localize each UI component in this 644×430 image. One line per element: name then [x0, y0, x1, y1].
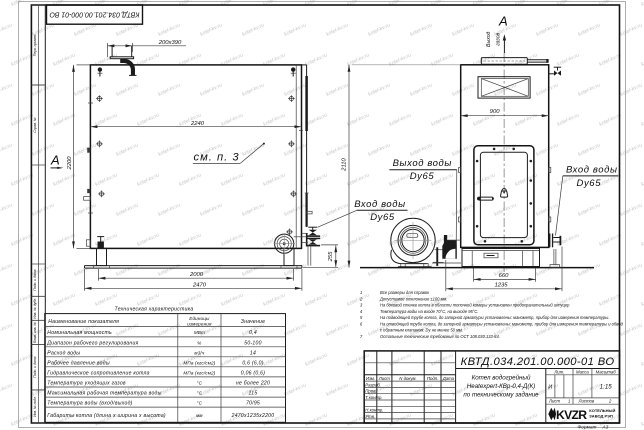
svg-text:Выход воды: Выход воды — [393, 158, 452, 169]
svg-text:2110: 2110 — [342, 157, 348, 171]
svg-text:Лит.: Лит. — [553, 370, 564, 375]
svg-text:КВТД.034.201.00.000-01 ВО: КВТД.034.201.00.000-01 ВО — [461, 356, 615, 368]
svg-text:Температура воды (вход/выход): Температура воды (вход/выход) — [47, 401, 132, 407]
svg-text:МВт: МВт — [194, 330, 205, 335]
svg-text:%: % — [197, 340, 201, 345]
svg-text:Дата: Дата — [442, 376, 455, 381]
svg-text:Диапазон рабочего регулировани: Диапазон рабочего регулирования — [46, 340, 138, 346]
svg-text:2240: 2240 — [190, 121, 205, 127]
svg-text:Подп. и дата: Подп. и дата — [33, 269, 37, 290]
svg-text:Гидравлическое сопротивление к: Гидравлическое сопротивление котла — [47, 371, 149, 377]
svg-text:Листов: Листов — [578, 399, 595, 404]
svg-text:0,06 (0,6): 0,06 (0,6) — [241, 371, 265, 377]
svg-text:газов: газов — [495, 32, 501, 45]
svg-text:Масса: Масса — [576, 370, 589, 375]
svg-text:14: 14 — [250, 350, 256, 356]
svg-text:КВТД.034.201.00.000-01 ВО: КВТД.034.201.00.000-01 ВО — [49, 11, 140, 18]
svg-text:KVZR: KVZR — [556, 408, 587, 422]
svg-text:°С: °С — [197, 391, 203, 396]
svg-text:Утв.: Утв. — [365, 414, 375, 419]
svg-text:1: 1 — [360, 290, 362, 295]
svg-text:50-100: 50-100 — [244, 340, 261, 346]
svg-text:Т.контр.: Т.контр. — [365, 395, 382, 400]
svg-text:МПа (кгс/см2): МПа (кгс/см2) — [183, 360, 215, 365]
svg-text:Подп.: Подп. — [427, 376, 438, 381]
svg-text:Значение: Значение — [241, 319, 265, 325]
svg-text:N докум.: N докум. — [399, 376, 416, 381]
svg-text:A: A — [50, 153, 60, 168]
svg-text:2000: 2000 — [189, 272, 204, 278]
svg-text:Выход: Выход — [486, 31, 492, 46]
svg-text:по техническому задание: по техническому задание — [463, 391, 539, 398]
svg-text:0,4: 0,4 — [249, 330, 257, 336]
svg-text:Температура уходящих газов: Температура уходящих газов — [47, 381, 126, 387]
svg-text:115: 115 — [249, 391, 258, 397]
svg-text:Номинальная мощность: Номинальная мощность — [47, 330, 112, 336]
svg-text:Лист: Лист — [548, 399, 560, 404]
svg-text:Dy65: Dy65 — [577, 178, 602, 189]
svg-text:Справ. №: Справ. № — [33, 117, 37, 133]
svg-text:На отводящей трубе котла, до з: На отводящей трубе котла, до запорной ар… — [380, 321, 624, 326]
svg-text:1:15: 1:15 — [600, 384, 613, 391]
svg-text:И: И — [548, 385, 552, 391]
svg-text:Котел водогрейный: Котел водогрейный — [472, 375, 531, 382]
svg-text:не более 220: не более 220 — [236, 381, 270, 387]
svg-text:Dy65: Dy65 — [410, 171, 435, 182]
svg-text:Наименование показателя: Наименование показателя — [48, 319, 119, 325]
svg-text:На подводящей трубе котла, до: На подводящей трубе котла, до запорной а… — [380, 315, 609, 320]
svg-text:Инв. № подл.: Инв. № подл. — [33, 396, 37, 417]
svg-text:2200: 2200 — [67, 156, 73, 171]
svg-text:2470: 2470 — [192, 282, 207, 288]
svg-text:Перв. примен.: Перв. примен. — [33, 34, 37, 57]
svg-text:Масштаб: Масштаб — [596, 370, 617, 375]
svg-text:Dy65: Dy65 — [370, 212, 395, 223]
svg-text:Техническая характеристика: Техническая характеристика — [115, 306, 194, 312]
svg-text:МПа (кгс/см2): МПа (кгс/см2) — [183, 371, 215, 376]
svg-text:А3: А3 — [602, 425, 609, 430]
svg-text:255: 255 — [328, 251, 334, 263]
svg-text:измерения: измерения — [187, 321, 212, 326]
svg-text:1235: 1235 — [494, 283, 508, 289]
svg-text:Остальные технические требован: Остальные технические требования по ОСТ … — [380, 334, 500, 339]
svg-text:2470х1235х2200: 2470х1235х2200 — [231, 413, 275, 419]
svg-text:Температура воды на входе 70°С: Температура воды на входе 70°С, на выход… — [380, 309, 479, 314]
svg-text:ЗАВОД РЭП: ЗАВОД РЭП — [589, 414, 613, 419]
svg-text:Heatexpert-КВр-0,4-Д(К): Heatexpert-КВр-0,4-Д(К) — [467, 383, 535, 390]
svg-text:Инв. № дубл.: Инв. № дубл. — [33, 298, 37, 319]
svg-text:Подп. и дата: Подп. и дата — [33, 356, 37, 377]
svg-text:Максимальная рабочая температу: Максимальная рабочая температура воды — [47, 391, 161, 397]
svg-text:КОТЕЛЬНЫЙ: КОТЕЛЬНЫЙ — [589, 408, 615, 413]
svg-text:Все размеры для справок: Все размеры для справок — [380, 290, 430, 295]
svg-text:Лист: Лист — [378, 376, 390, 381]
svg-text:На боковой стенке котла в обла: На боковой стенке котла в области топочн… — [380, 303, 570, 308]
svg-text:0,6 (6,0): 0,6 (6,0) — [242, 360, 263, 366]
svg-text:A: A — [498, 13, 508, 28]
svg-text:900: 900 — [490, 109, 501, 115]
svg-text:Н.контр.: Н.контр. — [365, 408, 383, 413]
svg-text:с обратным клапаном. Dу не мен: с обратным клапаном. Dу не менее 50 мм. — [380, 328, 463, 333]
svg-text:°С: °С — [197, 401, 203, 406]
svg-text:Расход воды: Расход воды — [47, 350, 80, 356]
svg-text:Разраб.: Разраб. — [365, 382, 381, 387]
svg-text:70/95: 70/95 — [246, 401, 260, 407]
svg-text:Формат: Формат — [578, 425, 597, 430]
svg-text:660: 660 — [499, 273, 510, 279]
svg-text:м3/ч: м3/ч — [194, 350, 204, 355]
svg-text:Габариты котла (длина х ширина: Габариты котла (длина х ширина х высота) — [47, 413, 166, 419]
svg-text:Пров.: Пров. — [365, 389, 376, 394]
svg-text:Вход воды: Вход воды — [354, 199, 406, 210]
svg-text:Вход воды: Вход воды — [566, 165, 618, 176]
svg-text:мм: мм — [196, 413, 203, 418]
svg-text:Взам. инв. №: Взам. инв. № — [33, 322, 37, 343]
svg-text:Рабочее давление воды: Рабочее давление воды — [47, 360, 110, 366]
svg-text:Допустимое отклонение ±100 мм.: Допустимое отклонение ±100 мм. — [379, 296, 447, 301]
svg-text:см. п. 3: см. п. 3 — [194, 152, 240, 164]
svg-text:°С: °С — [197, 381, 203, 386]
svg-text:Изм.: Изм. — [366, 376, 375, 381]
svg-text:200х390: 200х390 — [158, 40, 182, 46]
